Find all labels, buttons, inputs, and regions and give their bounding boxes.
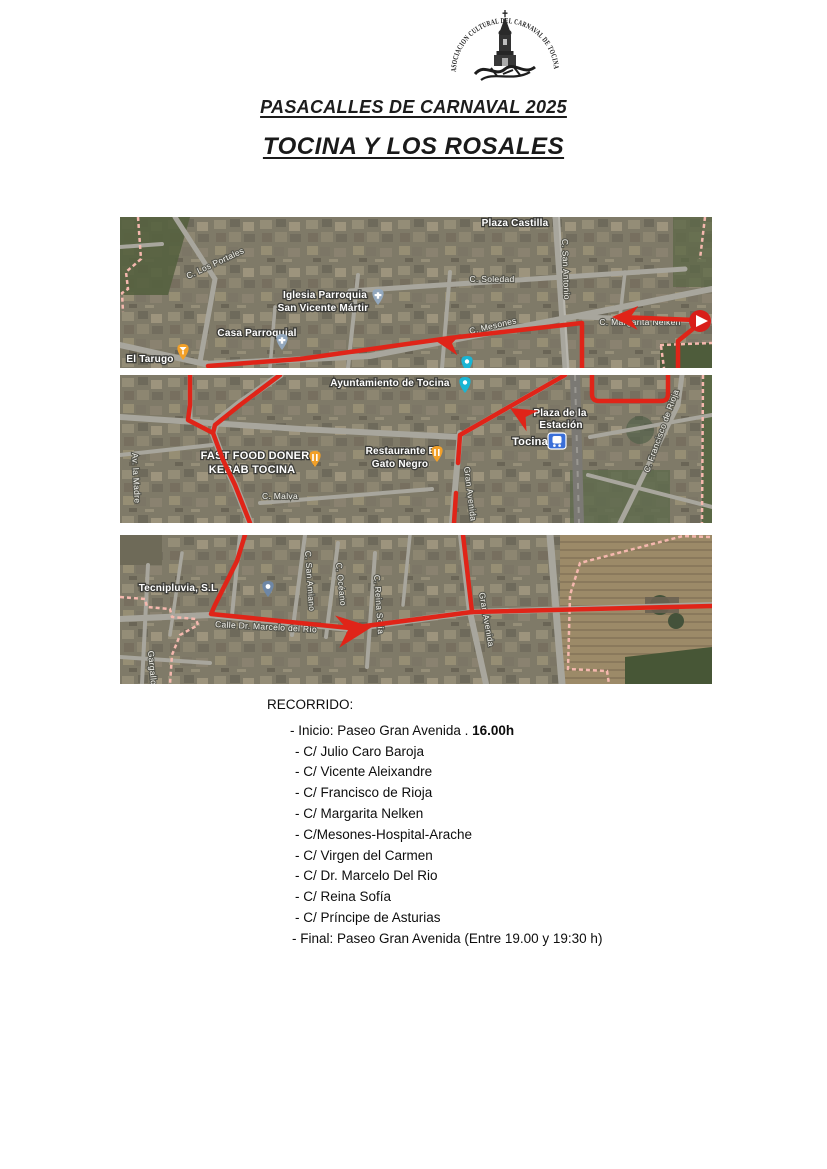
label-c-malva: C. Malva [262,491,298,501]
train-station-icon [548,433,566,449]
label-ayuntamiento: Ayuntamiento de Tocina [330,378,450,389]
label-iglesia-line1: Iglesia Parroquia [283,290,367,301]
label-c-soledad: C. Soledad [469,274,514,284]
recorrido-street: - C/Mesones-Hospital-Arache [267,825,687,846]
recorrido-street: - C/ Francisco de Rioja [267,783,687,804]
recorrido-street: - C/ Julio Caro Baroja [267,742,687,763]
recorrido-street: - C/ Príncipe de Asturias [267,908,687,929]
recorrido-final: - Final: Paseo Gran Avenida (Entre 19.00… [267,929,687,950]
label-fast-food-line1: FAST FOOD DONER [201,450,310,462]
label-plaza-estacion-line2: Estación [539,420,582,431]
recorrido-street: - C/ Reina Sofía [267,887,687,908]
label-el-tarugo: El Tarugo [126,354,173,365]
label-plaza-castilla: Plaza Castilla [482,218,549,229]
route-map-north: Plaza Castilla C. Soledad C. San Antonio… [120,217,712,368]
recorrido-street: - C/ Virgen del Carmen [267,846,687,867]
page-title: PASACALLES DE CARNAVAL 2025 [0,97,827,118]
recorrido-street: - C/ Dr. Marcelo Del Rio [267,866,687,887]
label-tecnipluvia: Tecnipluvia, S.L [139,583,218,594]
label-iglesia-line2: San Vicente Mártir [278,303,369,314]
recorrido-street: - C/ Vicente Aleixandre [267,762,687,783]
recorrido-heading: RECORRIDO: [267,695,687,716]
route-map-centre: Ayuntamiento de Tocina FAST FOOD DONER K… [120,375,712,523]
route-description: RECORRIDO: - Inicio: Paseo Gran Avenida … [267,695,687,950]
label-tocina-station: Tocina [512,436,549,448]
label-restaurante-line2: Gato Negro [372,459,428,470]
start-time: 16.00h [472,723,514,738]
label-plaza-estacion-line1: Plaza de la [533,408,587,419]
carnival-route-document: ASOCIACION CULTURAL DEL CARNAVAL DE TOCI… [0,0,827,1169]
label-c-san-antonio: C. San Antonio [560,239,572,300]
label-restaurante-line1: Restaurante El [366,446,439,457]
page-subtitle: TOCINA Y LOS ROSALES [0,133,827,161]
route-map-south: Tecnipluvia, S.L Calle Dr. Marcelo del R… [120,535,712,684]
route-start-marker [689,310,711,332]
recorrido-inicio: - Inicio: Paseo Gran Avenida . 16.00h [267,721,687,742]
association-seal-logo: ASOCIACION CULTURAL DEL CARNAVAL DE TOCI… [441,4,569,90]
recorrido-street: - C/ Margarita Nelken [267,804,687,825]
label-fast-food-line2: KEBAB TOCINA [209,464,296,476]
